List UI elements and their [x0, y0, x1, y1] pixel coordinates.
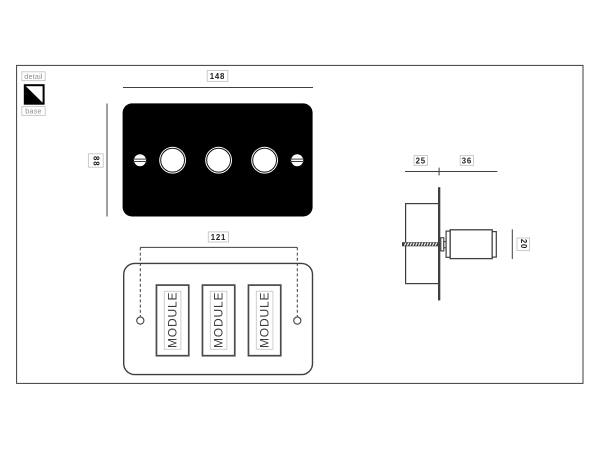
svg-text:base: base: [25, 107, 41, 116]
svg-text:121: 121: [211, 233, 226, 242]
svg-text:MODULE: MODULE: [212, 292, 226, 348]
svg-text:88: 88: [91, 156, 100, 166]
svg-text:25: 25: [416, 156, 426, 165]
svg-text:MODULE: MODULE: [166, 292, 180, 348]
svg-text:detail: detail: [24, 72, 43, 81]
svg-text:36: 36: [462, 156, 472, 165]
svg-text:20: 20: [519, 239, 528, 249]
svg-text:148: 148: [210, 72, 225, 81]
svg-text:MODULE: MODULE: [258, 292, 272, 348]
